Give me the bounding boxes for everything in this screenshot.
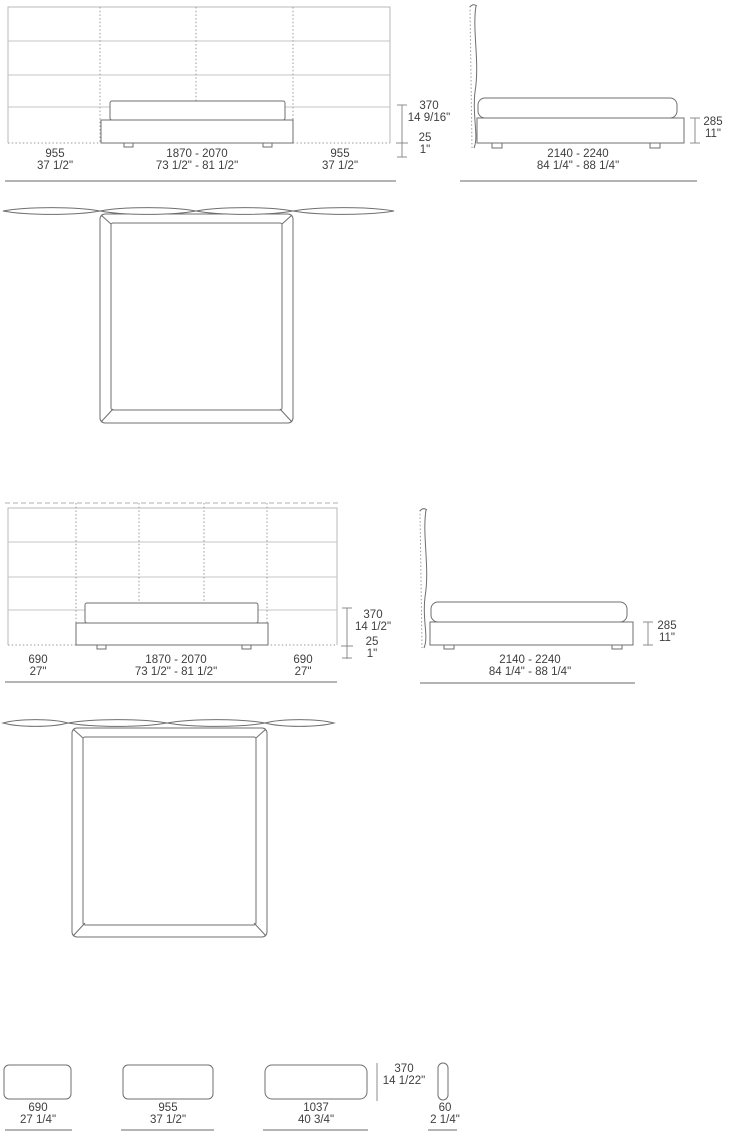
dim-panel-height: 370 14 1/22" — [383, 1063, 425, 1087]
bed-base-side — [477, 118, 684, 143]
dim-fv1-height: 370 14 9/16" — [408, 100, 450, 124]
height-dimension-line — [396, 105, 408, 157]
dim-sv1-base-height: 285 11" — [703, 116, 722, 140]
dim-panel-large: 1037 40 3/4" — [298, 1102, 334, 1126]
headboard-side-profile — [470, 5, 477, 148]
dim-panel-medium: 955 37 1/2" — [150, 1102, 186, 1126]
bed-foot — [650, 143, 660, 148]
bed-foot — [124, 143, 133, 147]
mattress-front — [85, 603, 258, 623]
bed-foot — [242, 645, 251, 649]
bed-foot — [444, 645, 454, 649]
dim-fv2-right-panel: 690 27" — [293, 654, 312, 678]
bed-frame-outer — [72, 728, 267, 937]
bed-foot — [263, 143, 272, 147]
panel-large — [265, 1065, 367, 1099]
panel-small — [4, 1065, 71, 1099]
dim-panel-small: 690 27 1/4" — [20, 1102, 56, 1126]
bed-frame-inner — [83, 737, 256, 925]
plan-view-narrow — [3, 720, 334, 937]
bed-base-front — [76, 623, 268, 645]
bed-foot — [97, 645, 106, 649]
headboard-panels-top-view — [3, 720, 334, 727]
dim-fv1-left-panel: 955 37 1/2" — [37, 148, 73, 172]
dim-sv1-length: 2140 - 2240 84 1/4" - 88 1/4" — [537, 148, 619, 172]
bed-base-side — [430, 622, 633, 645]
bed-dimension-drawing — [0, 0, 730, 1138]
mattress-side — [478, 98, 677, 118]
height-dimension-line — [341, 608, 353, 659]
base-height-dimension-line — [643, 622, 653, 645]
dim-fv1-clearance: 25 1" — [419, 132, 432, 156]
bed-foot — [612, 645, 622, 649]
dim-sv2-length: 2140 - 2240 84 1/4" - 88 1/4" — [489, 654, 571, 678]
mattress-front — [110, 101, 285, 120]
panel-side-profile — [438, 1063, 448, 1100]
dim-fv2-clearance: 25 1" — [366, 636, 379, 660]
mattress-side — [431, 602, 627, 622]
dim-fv2-bed-width: 1870 - 2070 73 1/2" - 81 1/2" — [135, 654, 217, 678]
headboard-panels-top-view — [3, 208, 394, 215]
bed-foot — [492, 143, 502, 148]
dim-fv1-bed-width: 1870 - 2070 73 1/2" - 81 1/2" — [156, 148, 238, 172]
panel-medium — [123, 1065, 213, 1099]
base-height-dimension-line — [690, 118, 700, 143]
bed-base-front — [101, 120, 293, 143]
bed-frame-inner — [111, 223, 282, 410]
technical-drawing-page: 955 37 1/2" 1870 - 2070 73 1/2" - 81 1/2… — [0, 0, 730, 1138]
dim-fv2-left-panel: 690 27" — [28, 654, 47, 678]
bed-frame-outer — [100, 214, 293, 423]
dim-fv1-right-panel: 955 37 1/2" — [322, 148, 358, 172]
headboard-side-profile — [420, 509, 427, 648]
dim-fv2-height: 370 14 1/2" — [355, 609, 391, 633]
plan-view-wide — [3, 208, 394, 423]
dim-sv2-base-height: 285 11" — [657, 620, 676, 644]
dim-panel-thickness: 60 2 1/4" — [430, 1102, 460, 1126]
